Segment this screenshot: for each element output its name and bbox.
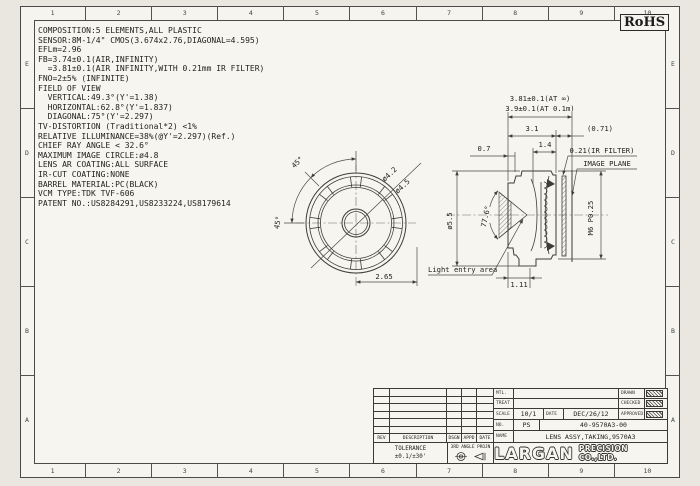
revision-row [374, 389, 493, 397]
revision-row [374, 427, 493, 435]
title-block-right: MTL. DRAWN TREAT CHECKED SCALE 10/1 DATE [494, 389, 667, 463]
tolerance-cell: TOLERANCE ±0.1/±30' [374, 443, 448, 463]
checked-stamp [646, 400, 663, 407]
fb-infinity-dim: 3.81±0.1(AT ∞) [510, 94, 571, 103]
approved-label: APPROVED [619, 409, 645, 419]
ir-filter-dim: 0.21(IR FILTER) [570, 146, 635, 155]
approved-stamp [646, 411, 663, 418]
name-row: NAME LENS ASSY,TAKING,9570A3 [494, 431, 667, 443]
company-logo: LARGAN [494, 444, 574, 463]
ir-filter-section [562, 176, 566, 256]
tolerance-label: TOLERANCE [374, 446, 447, 452]
mtl-label: MTL. [494, 389, 514, 398]
revision-row [374, 419, 493, 427]
drawing-scan: { "page": { "rohs_label": "RoHS" }, "bor… [0, 0, 700, 486]
rev-col-header: REV [374, 434, 390, 442]
drawn-stamp [646, 390, 663, 397]
dsgn-col-header: DSGN [447, 434, 462, 442]
front-view: ø4.2 ø4.5 45° 45° 2.65 [272, 151, 421, 288]
title-block: REV DESCRIPTION DSGN APPD DATE TOLERANCE… [373, 388, 668, 464]
light-entry-label: Light entry area [428, 265, 497, 274]
date-col-header: DATE [477, 434, 493, 442]
back-focus-ref-dim: (0.71) [587, 124, 613, 133]
front-angle-2-label: 45° [272, 215, 283, 229]
checked-label: CHECKED [619, 399, 645, 408]
front-flange-dim: 1.11 [510, 280, 527, 289]
tolerance-row: TOLERANCE ±0.1/±30' 3RD ANGLE PROJN [374, 443, 493, 463]
light-entry-hatch [499, 192, 511, 238]
front-dia-outer-label: ø4.5 [393, 177, 412, 195]
desc-col-header: DESCRIPTION [390, 434, 447, 442]
projection-cell: 3RD ANGLE PROJN [448, 443, 493, 463]
date-label: DATE [544, 409, 564, 419]
rohs-badge: RoHS [620, 14, 669, 31]
revision-table: REV DESCRIPTION DSGN APPD DATE TOLERANCE… [374, 389, 494, 463]
barrel-diameter-dim: ø5.5 [445, 212, 454, 229]
no-prefix-value: PS [514, 420, 540, 430]
appd-col-header: APPD [462, 434, 477, 442]
front-step-dim: 0.7 [478, 144, 491, 153]
company-suffix: PRECISION CO.,LTD. [579, 444, 667, 462]
no-label: NO. [494, 420, 514, 430]
barrel-length-dim: 3.1 [526, 124, 539, 133]
treat-row: TREAT CHECKED [494, 399, 667, 409]
part-name: LENS ASSY,TAKING,9570A3 [514, 431, 667, 442]
revision-row [374, 404, 493, 412]
revision-row [374, 412, 493, 420]
drawn-label: DRAWN [619, 389, 645, 398]
checked-stamp-cell [645, 399, 667, 408]
treat-label: TREAT [494, 399, 514, 408]
scanned-paper: 1 2 3 4 5 6 7 8 9 10 1 2 3 4 5 6 7 8 9 1… [0, 0, 700, 486]
front-dia-inner-label: ø4.2 [380, 165, 399, 183]
projection-label: 3RD ANGLE PROJN [451, 445, 491, 450]
front-offset-dim: 2.65 [375, 272, 392, 281]
mtl-row: MTL. DRAWN [494, 389, 667, 399]
front-angle-1-label: 45° [289, 154, 305, 169]
name-label: NAME [494, 431, 514, 442]
scale-label: SCALE [494, 409, 514, 419]
date-value: DEC/26/12 [564, 409, 619, 419]
scale-row: SCALE 10/1 DATE DEC/26/12 APPROVED [494, 409, 667, 420]
fb-near-dim: 3.9±0.1(AT 0.1m) [505, 104, 574, 113]
company-logo-row: LARGAN PRECISION CO.,LTD. [494, 443, 667, 463]
third-angle-projection-icon [454, 451, 488, 462]
revision-header: REV DESCRIPTION DSGN APPD DATE [374, 434, 493, 443]
drawing-number: 40-9570A3-00 [540, 420, 667, 430]
revision-row [374, 397, 493, 405]
approved-stamp-cell [645, 409, 667, 419]
image-plane-label: IMAGE PLANE [583, 159, 631, 168]
scale-value: 10/1 [514, 409, 544, 419]
tolerance-value: ±0.1/±30' [374, 454, 447, 460]
section-view: 3.81±0.1(AT ∞) 3.9±0.1(AT 0.1m) 3.1 (0.7… [428, 94, 637, 289]
drawn-stamp-cell [645, 389, 667, 398]
thread-spec-label: M6 P0.25 [586, 201, 595, 236]
number-row: NO. PS 40-9570A3-00 [494, 420, 667, 431]
rear-section-dim: 1.4 [539, 140, 552, 149]
